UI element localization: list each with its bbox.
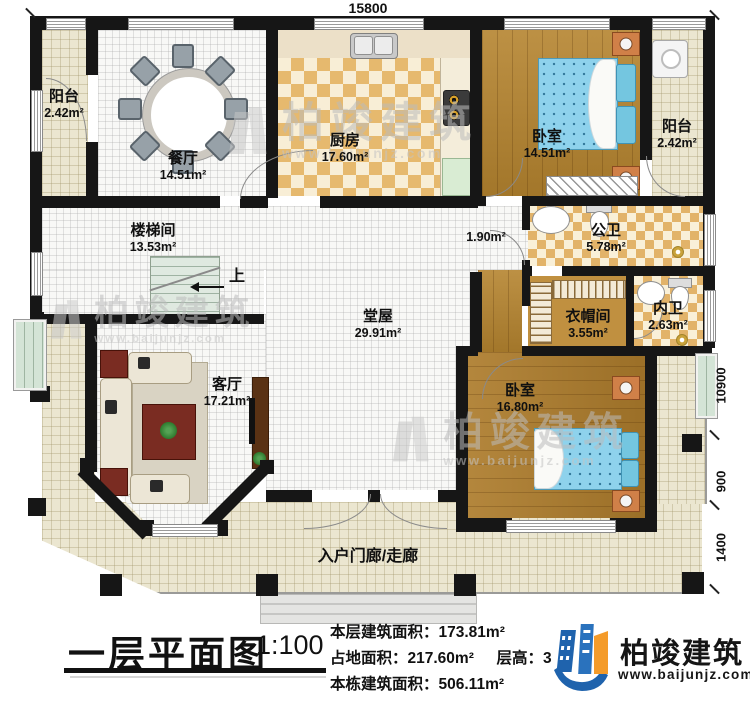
bed2-pillow: [621, 432, 639, 459]
window-top-kitchen: [314, 18, 424, 30]
wall-corridor-hall: [470, 272, 482, 352]
dimension-tick: [709, 584, 720, 595]
dimension-top-width: 15800: [335, 0, 401, 16]
brand-logo-svg: [548, 620, 614, 696]
window-left-dining: [31, 90, 43, 152]
brand-name: 柏竣建筑: [620, 630, 744, 672]
bed1-pillow: [616, 106, 636, 144]
side-table: [100, 350, 128, 378]
plan-scale: 1:100: [256, 630, 324, 661]
window-living-bay: [152, 524, 218, 537]
floor-plan-page: 柏竣建筑 www.baijunjz.com 柏竣建筑 www.baijunjz.…: [0, 0, 750, 707]
title-underline: [64, 668, 326, 673]
wall-band-a: [42, 196, 220, 208]
column: [28, 498, 46, 516]
room-label-living: 客厅 17.21m²: [204, 376, 251, 408]
column: [454, 574, 476, 596]
wall-closet-innerbath: [626, 276, 634, 350]
column: [100, 574, 122, 596]
column: [682, 434, 702, 452]
corridor-floor: [478, 270, 522, 352]
window-top-dining: [128, 18, 234, 30]
room-label-inner-bath: 内卫 2.63m²: [648, 300, 688, 332]
bed2-pillow: [621, 460, 639, 487]
stairs-arrow-line: [198, 286, 224, 288]
closet-rack-top: [552, 280, 626, 299]
bed1-nightstand: [612, 32, 640, 56]
wall-bed2-bottom-b: [610, 518, 657, 532]
sofa-cushion: [150, 480, 163, 492]
room-label-public-bath: 公卫 5.78m²: [586, 222, 626, 254]
wall-bay-corner-left: [80, 458, 94, 474]
stat-footprint: 占地面积：217.60m² 层高：3: [330, 646, 552, 668]
upper-hall-floor: [42, 206, 528, 270]
stairs-up-label: 上: [229, 268, 245, 287]
brand-logo-icon: [548, 620, 614, 696]
dimension-tick: [709, 500, 720, 511]
kitchen-cabinet: [442, 158, 471, 196]
bed2-nightstand: [612, 376, 640, 400]
floor-drain: [672, 246, 684, 258]
window-left-stairwell: [31, 252, 43, 296]
dimension-right-upper: 900: [714, 464, 729, 500]
wall-bedroom1-balconytr: [640, 16, 652, 160]
bed2-nightstand: [612, 490, 640, 512]
wall-stairwell-bottom: [42, 314, 264, 324]
wall-band-c: [320, 196, 478, 208]
wall-passage-bath-a: [522, 196, 530, 230]
room-label-stairwell: 楼梯间 13.53m²: [130, 222, 177, 254]
dimension-right-lower: 1400: [714, 526, 729, 570]
window-bedroom2-south: [506, 520, 616, 533]
stat-floor-area: 本层建筑面积：173.81m²: [330, 620, 505, 642]
room-label-balcony-tl: 阳台 2.42m²: [44, 88, 84, 120]
stove-burner: [449, 110, 459, 120]
dimension-tick: [709, 430, 720, 441]
dining-chair: [118, 98, 142, 120]
wall-bath-top-b: [522, 196, 705, 206]
dining-chair: [172, 44, 194, 68]
window-top-bedroom1: [504, 18, 610, 30]
hall-floor: [266, 270, 478, 490]
wall-bed2-top-b: [522, 346, 712, 356]
bed1-pillow: [616, 64, 636, 102]
dimension-right-height: 10900: [714, 362, 729, 410]
wall-bed2-bottom-a: [456, 518, 512, 532]
room-label-passage: 1.90m²: [466, 230, 506, 245]
stairs-arrow-head: [190, 282, 199, 292]
stat-total-area: 本栋建筑面积：506.11m²: [330, 672, 504, 694]
room-label-balcony-tr: 阳台 2.42m²: [657, 118, 697, 150]
wall-living-left: [85, 314, 97, 472]
room-label-porch: 入户门廊/走廊: [318, 548, 418, 567]
window-right-inner-bath: [704, 290, 716, 342]
column: [256, 574, 278, 596]
room-label-dining: 餐厅 14.51m²: [160, 150, 207, 182]
wall-kitchen-bedroom1: [470, 16, 482, 206]
sofa-cushion: [105, 400, 117, 414]
room-label-closet: 衣帽间 3.55m²: [565, 308, 610, 340]
dining-chair: [224, 98, 248, 120]
washing-machine-drum: [661, 49, 681, 69]
room-label-bedroom1: 卧室 14.51m²: [524, 128, 571, 160]
stove-burner: [449, 95, 459, 105]
wall-closet-left: [522, 276, 530, 306]
room-label-hall: 堂屋 29.91m²: [355, 308, 402, 340]
wall-balconytl-dining-a: [86, 30, 98, 75]
wall-pubbath-bottom-a: [522, 266, 532, 276]
bedroom1-wardrobe: [546, 176, 638, 196]
stat-storey-height: 层高：: [497, 650, 544, 667]
floor-drain: [676, 334, 688, 346]
column: [682, 572, 704, 594]
room-label-kitchen: 厨房 17.60m²: [322, 132, 369, 164]
wall-bed2-porch: [645, 352, 657, 532]
closet-rack-left: [530, 282, 552, 344]
wall-bay-corner-right: [260, 460, 274, 474]
brand-url: www.baijunjz.com: [618, 667, 750, 682]
bay-window-left: [14, 320, 46, 390]
kitchen-sink-basin: [354, 36, 373, 55]
sink-public-bath: [532, 206, 570, 234]
room-label-bedroom2: 卧室 16.80m²: [497, 382, 544, 414]
kitchen-sink-basin: [374, 36, 393, 55]
title-underline-thin: [70, 676, 326, 678]
window-right-public-bath: [704, 214, 716, 266]
plant: [160, 422, 177, 439]
wall-pubbath-bottom-b: [562, 266, 705, 276]
bed1-blanket: [588, 59, 616, 149]
window-top-balcony-tl: [46, 18, 86, 30]
window-top-balcony-tr: [652, 18, 706, 30]
wall-hall-bed2: [456, 346, 468, 532]
sofa-cushion: [138, 357, 150, 369]
wall-bath-top-a: [478, 196, 486, 206]
wall-balconytl-dining-b: [86, 142, 98, 196]
